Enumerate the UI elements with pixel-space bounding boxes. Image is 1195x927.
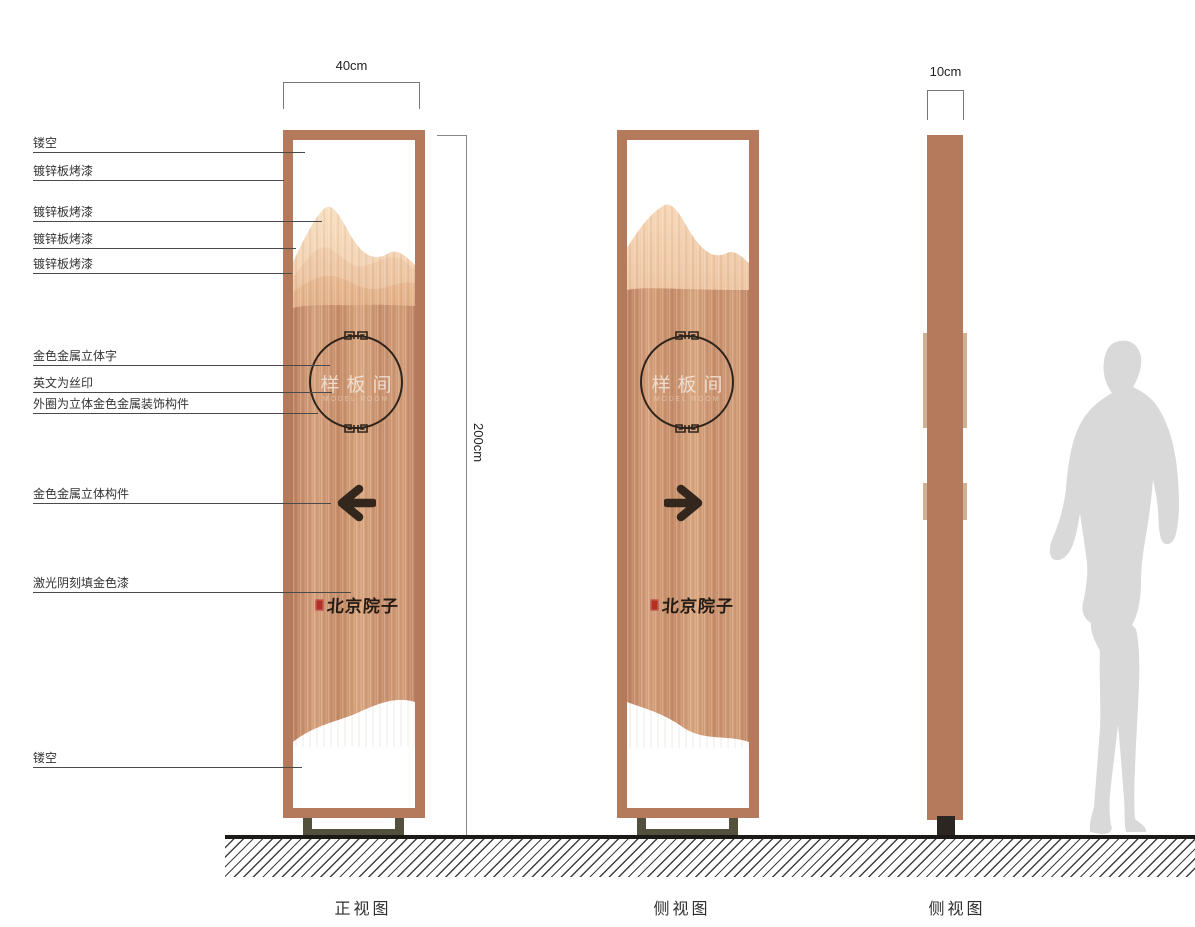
- seal-stamp-icon: [650, 599, 659, 611]
- leader-line: [33, 180, 284, 181]
- brand-row: 北京院子: [640, 592, 744, 617]
- seal-stamp-icon: [315, 599, 324, 611]
- leader-line: [33, 392, 332, 393]
- caption-front-view: 正视图: [313, 895, 413, 919]
- annotation-label: 镀锌板烤漆: [33, 162, 93, 179]
- leader-line: [33, 248, 296, 249]
- leader-line: [33, 273, 292, 274]
- leader-line: [33, 413, 318, 414]
- annotation-label: 镂空: [33, 134, 57, 151]
- leader-line: [33, 767, 302, 768]
- ground-line: [225, 835, 1195, 839]
- leader-line: [33, 592, 351, 593]
- annotation-label: 激光阴刻填金色漆: [33, 574, 129, 591]
- dimension-bracket-side: [927, 90, 964, 120]
- annotation-label: 外圈为立体金色金属装饰构件: [33, 395, 189, 412]
- dimension-line-height: [466, 135, 467, 835]
- annotation-label: 镀锌板烤漆: [33, 203, 93, 220]
- edge-protrusion: [963, 333, 967, 428]
- side-panel-face: [627, 140, 749, 808]
- side-panel-artwork: [627, 140, 749, 808]
- spec-drawing-canvas: 镂空 镀锌板烤漆 镀锌板烤漆 镀锌板烤漆 镀锌板烤漆 金色金属立体字 英文为丝印…: [0, 0, 1195, 927]
- brand-calligraphy: 北京院子: [326, 592, 400, 617]
- sign-subtext: MODEL ROOM: [296, 396, 416, 403]
- front-panel-artwork: [293, 140, 415, 808]
- edge-protrusion: [923, 483, 927, 520]
- edge-view-panel: [927, 135, 963, 820]
- annotation-label: 镀锌板烤漆: [33, 255, 93, 272]
- arrow-left-icon: [328, 484, 376, 522]
- edge-protrusion: [923, 333, 927, 428]
- dimension-tick: [437, 135, 466, 136]
- arrow-right-icon: [664, 484, 712, 522]
- dimension-width-front: 40cm: [283, 58, 420, 73]
- annotation-label: 英文为丝印: [33, 374, 93, 391]
- annotation-label: 金色金属立体构件: [33, 485, 129, 502]
- caption-side-view-2: 侧视图: [907, 895, 1007, 919]
- sign-subtext: MODEL ROOM: [627, 396, 747, 403]
- person-silhouette: [1040, 333, 1190, 838]
- dimension-width-side: 10cm: [918, 64, 973, 79]
- brand-calligraphy: 北京院子: [661, 592, 735, 617]
- edge-protrusion: [963, 483, 967, 520]
- ground-hatch: [225, 839, 1195, 877]
- caption-side-view-1: 侧视图: [632, 895, 732, 919]
- annotation-label: 镂空: [33, 749, 57, 766]
- front-panel-face: [293, 140, 415, 808]
- sign-text: 样板间: [627, 370, 747, 397]
- leader-line: [33, 152, 305, 153]
- leader-line: [33, 365, 330, 366]
- brand-row: 北京院子: [305, 592, 409, 617]
- annotation-label: 镀锌板烤漆: [33, 230, 93, 247]
- dimension-bracket-front: [283, 82, 420, 109]
- leader-line: [33, 221, 322, 222]
- annotation-label: 金色金属立体字: [33, 347, 117, 364]
- dimension-height: 200cm: [471, 423, 486, 462]
- front-view-panel: 样板间 MODEL ROOM 北京院子: [283, 130, 425, 818]
- side-view-panel: 样板间 MODEL ROOM 北京院子: [617, 130, 759, 818]
- leader-line: [33, 503, 331, 504]
